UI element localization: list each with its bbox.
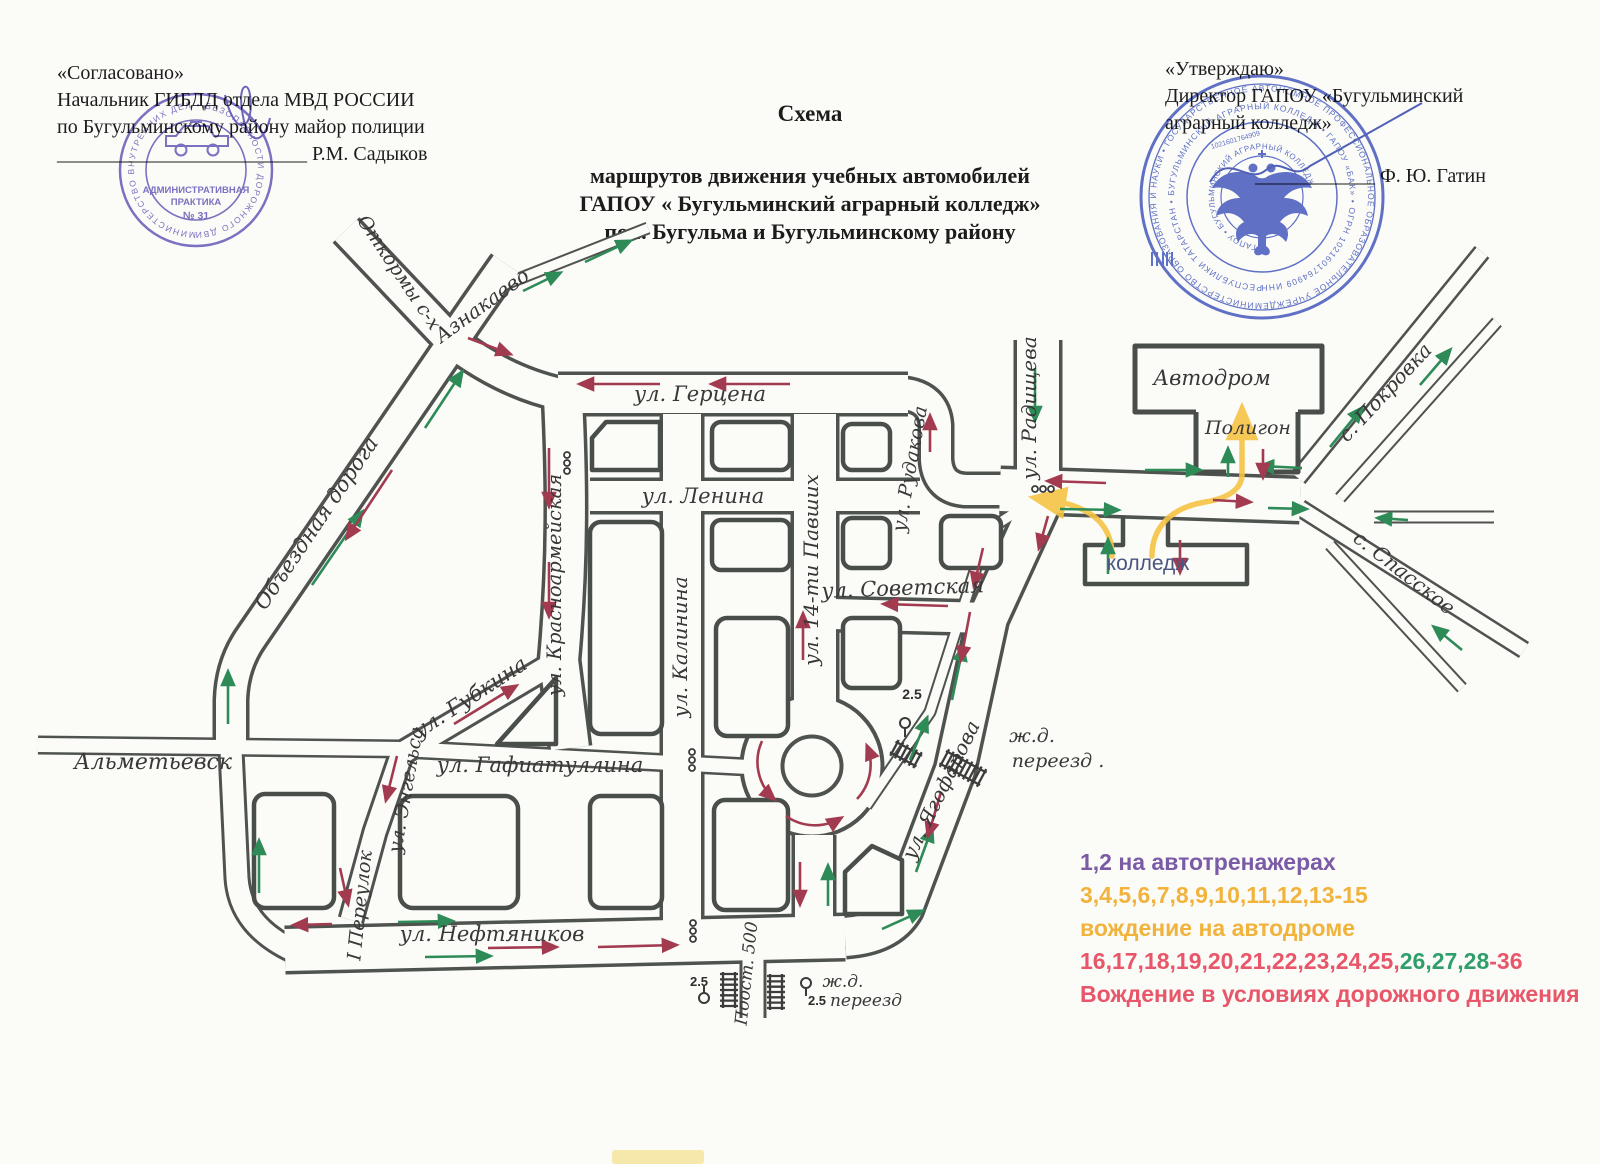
place-label-almetyevsk: Альметьевск bbox=[72, 750, 233, 775]
street-label-gafiatullina: ул. Гафиатуллина bbox=[436, 753, 644, 777]
stamp-ring-text: МИНИСТЕРСТВО ВНУТРЕННИХ ДЕЛ • БЕЗОПАСНОС… bbox=[0, 0, 266, 240]
place-label-spasskoe: с. Спасское bbox=[1349, 525, 1460, 619]
street-label-gertsena: ул. Герцена bbox=[633, 382, 766, 406]
police-car-icon bbox=[166, 122, 228, 156]
clearance-2-5-ne: 2.5 bbox=[902, 686, 922, 702]
svg-text:МИНИСТЕРСТВО ВНУТРЕННИХ ДЕЛ •: МИНИСТЕРСТВО ВНУТРЕННИХ ДЕЛ • БЕЗОПАСНОС… bbox=[0, 0, 266, 240]
stamp-line1: АДМИНИСТРАТИВНАЯ bbox=[143, 185, 250, 196]
stamp-line3: № 31 bbox=[183, 210, 209, 222]
road-label-obyezdnaya: Объездная дорога bbox=[249, 432, 383, 614]
place-label-poligon: Полигон bbox=[1204, 417, 1291, 439]
route-map-canvas: ул. Герцена ул. Ленина ул. Советская ул.… bbox=[0, 0, 1600, 1164]
signature-right bbox=[1210, 103, 1422, 182]
rail-label-pereezd-bottom: переезд bbox=[830, 991, 902, 1011]
rail-label-zhd-bottom: ж.д. bbox=[823, 972, 864, 992]
stamp-ring-outer-text: МИНИСТЕРСТВО ОБРАЗОВАНИЯ И НАУКИ • ГОСУД… bbox=[0, 0, 1376, 311]
clearance-2-5-bottom-left: 2.5 bbox=[690, 974, 708, 989]
place-label-avtodrom: Автодром bbox=[1151, 366, 1271, 390]
street-label-radishcheva: ул. Радищева bbox=[1017, 336, 1041, 480]
stamp-line2: ПРАКТИКА bbox=[171, 197, 222, 208]
street-label-lenina: ул. Ленина bbox=[641, 484, 765, 508]
street-label-kalinina: ул. Калинина bbox=[668, 576, 692, 718]
clearance-2-5-bottom-right: 2.5 bbox=[808, 993, 826, 1008]
college-stamp: МИНИСТЕРСТВО ОБРАЗОВАНИЯ И НАУКИ • ГОСУД… bbox=[0, 0, 1422, 318]
gibdd-stamp: МИНИСТЕРСТВО ВНУТРЕННИХ ДЕЛ • БЕЗОПАСНОС… bbox=[0, 0, 272, 246]
place-label-pokrovka: с. Покровка bbox=[1333, 338, 1436, 446]
place-label-kolledzh: колледж bbox=[1107, 552, 1190, 575]
street-label-neftyanikov: ул. Нефтяников bbox=[399, 922, 585, 946]
svg-text:МИНИСТЕРСТВО ОБРАЗОВАНИЯ И НАУ: МИНИСТЕРСТВО ОБРАЗОВАНИЯ И НАУКИ • ГОСУД… bbox=[0, 0, 1376, 311]
street-label-krasnoarmeyskaya: ул. Красноармейская bbox=[543, 474, 566, 697]
street-label-pavshikh: ул. 14-ти Павших bbox=[799, 474, 823, 667]
rail-label-zhd-ne: ж.д. bbox=[1009, 725, 1055, 747]
rail-label-pereezd-ne: переезд . bbox=[1012, 750, 1105, 772]
